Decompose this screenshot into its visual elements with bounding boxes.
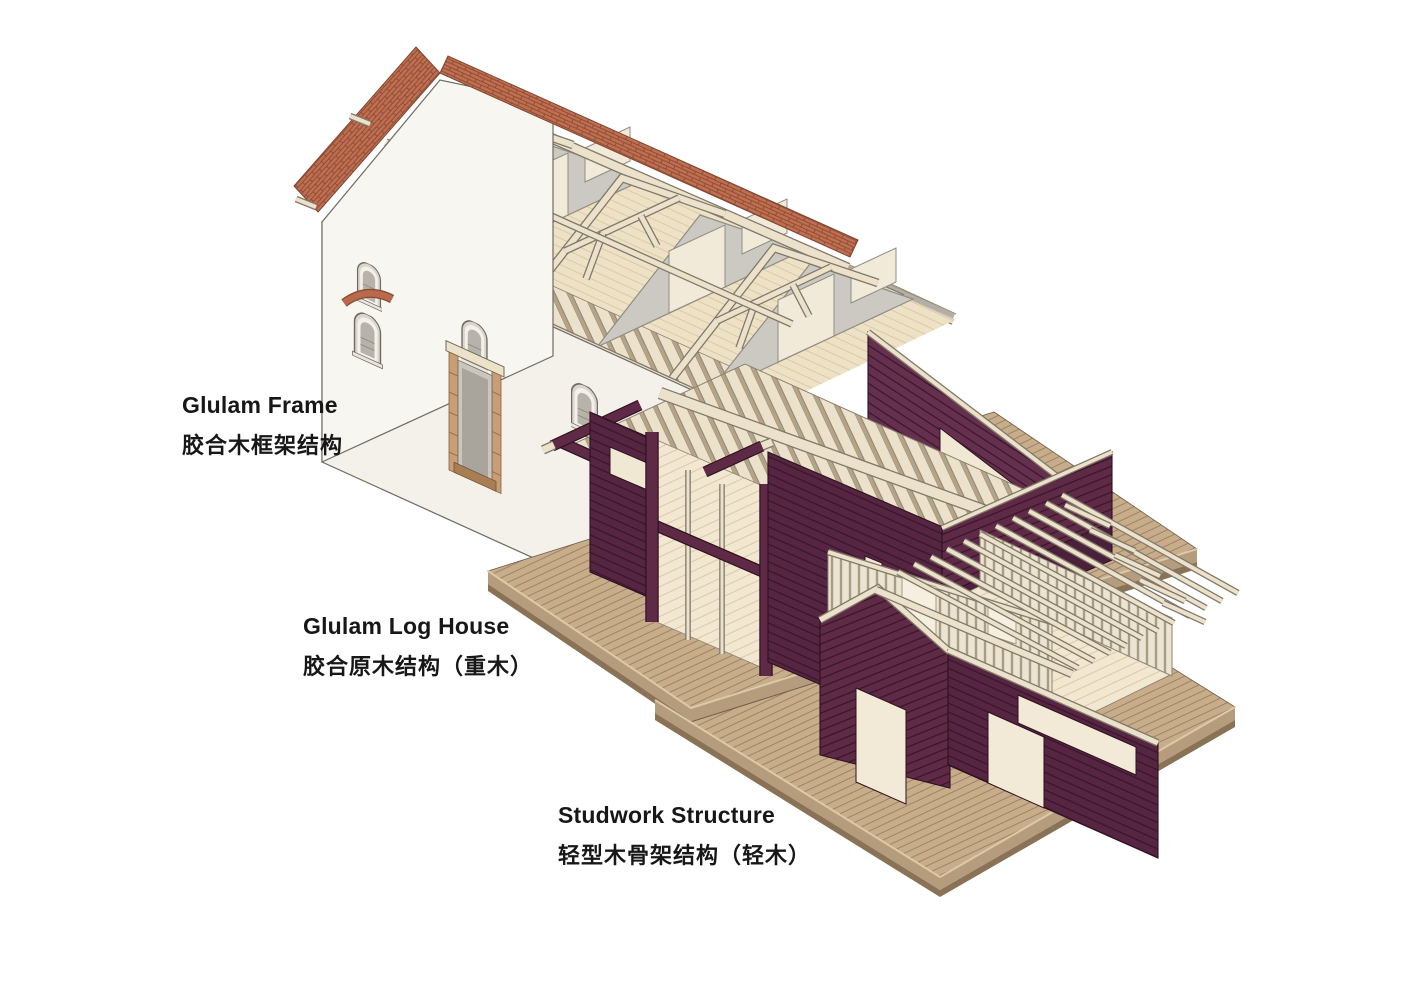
label-glulam-frame-en: Glulam Frame xyxy=(182,392,343,419)
diagram-canvas: Glulam Frame 胶合木框架结构 Glulam Log House 胶合… xyxy=(0,0,1415,1000)
label-glulam-frame: Glulam Frame 胶合木框架结构 xyxy=(182,392,343,460)
label-studwork-structure: Studwork Structure 轻型木骨架结构（轻木） xyxy=(558,802,811,870)
beam-end-cap xyxy=(762,442,772,446)
beam-end-cap xyxy=(543,445,554,450)
label-glulam-log-house-en: Glulam Log House xyxy=(303,613,533,640)
porch-log-wall xyxy=(590,412,655,600)
label-studwork-structure-zh: 轻型木骨架结构（轻木） xyxy=(558,838,811,870)
label-glulam-frame-zh: 胶合木框架结构 xyxy=(182,428,343,460)
label-studwork-structure-en: Studwork Structure xyxy=(558,802,811,829)
label-glulam-log-house-zh: 胶合原木结构（重木） xyxy=(303,649,533,681)
entrance-door xyxy=(446,341,504,495)
label-glulam-log-house: Glulam Log House 胶合原木结构（重木） xyxy=(303,613,533,681)
